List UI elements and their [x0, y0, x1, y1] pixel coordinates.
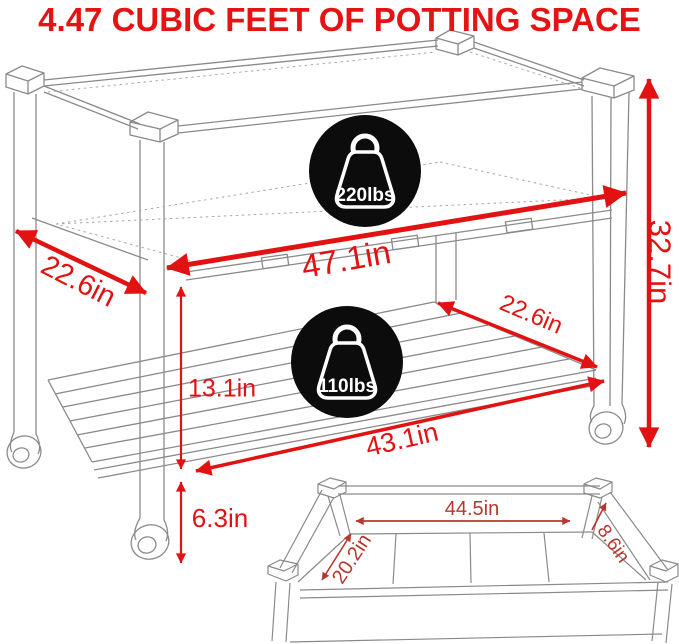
- product-dimension-diagram: 4.47 CUBIC FEET OF POTTING SPACE 22.6in …: [0, 0, 679, 644]
- post-back-left: [6, 66, 44, 434]
- inset-dividers: [393, 533, 549, 584]
- dim-inner-length-label: 44.5in: [445, 499, 500, 519]
- dim-ground-clearance-label: 6.3in: [192, 505, 248, 531]
- caster-wheel-back-left: [3, 432, 45, 473]
- shelf-capacity-label: 110lbs: [318, 376, 376, 397]
- top-capacity-badge: 220lbs: [309, 115, 421, 227]
- dim-overall-height-label: 32.7in: [645, 220, 676, 304]
- page-title: 4.47 CUBIC FEET OF POTTING SPACE: [0, 1, 679, 39]
- caster-wheel-front-left: [127, 518, 174, 564]
- caster-wheel-front-right: [585, 404, 627, 448]
- dim-box-to-shelf-label: 13.1in: [188, 377, 256, 402]
- shelf-capacity-badge: 110lbs: [291, 306, 403, 418]
- post-back-right: [436, 30, 474, 303]
- post-front-right: [582, 68, 634, 406]
- top-capacity-label: 220lbs: [335, 185, 394, 206]
